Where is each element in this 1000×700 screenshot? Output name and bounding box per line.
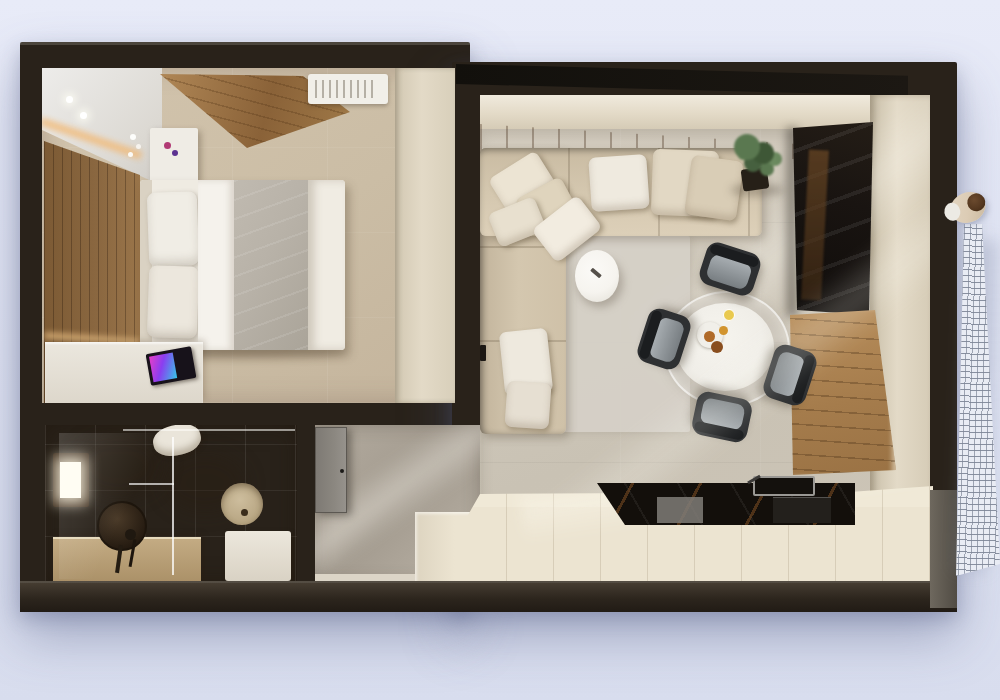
potted-plant — [720, 132, 788, 194]
drink-glass — [723, 309, 735, 321]
bedroom — [42, 68, 455, 403]
bathroom — [45, 425, 297, 583]
bed-pillow — [147, 265, 199, 339]
pastry — [719, 326, 728, 335]
glass-reflection — [59, 433, 179, 579]
orchid-flower — [130, 134, 136, 140]
ceiling-spotlight-icon — [80, 112, 87, 119]
wall-top-highlight — [20, 42, 470, 45]
wall-switch — [480, 345, 486, 361]
folded-sheet — [198, 180, 234, 350]
plant-leaves — [734, 134, 760, 160]
vent-grille-icon — [315, 80, 377, 98]
bathroom-unit — [225, 531, 291, 581]
kitchen — [413, 448, 933, 584]
dishwasher-front — [657, 497, 703, 523]
glass-top-edge — [123, 429, 295, 431]
ac-vent — [308, 74, 388, 104]
magazine-cover — [149, 353, 177, 383]
pastry — [704, 331, 715, 342]
orchid-flower — [136, 144, 141, 149]
sofa-cushion — [588, 154, 650, 212]
bed-pillow — [147, 191, 200, 267]
kitchen-sink — [753, 476, 815, 496]
round-basin — [221, 483, 263, 525]
ceiling-spotlight-icon — [66, 96, 73, 103]
duvet-edge — [308, 180, 345, 350]
grey-blanket — [234, 180, 308, 350]
wall-bottom-face — [20, 581, 957, 612]
wall-right-lower-face — [930, 490, 957, 608]
plant-pot — [741, 166, 770, 191]
black-stone-countertop — [597, 483, 855, 525]
floorplan-stage — [0, 0, 1000, 700]
nightstand-decor — [172, 150, 178, 156]
orchid-flower — [128, 152, 133, 157]
sofa-cushion — [504, 381, 551, 430]
blanket-creases — [234, 180, 308, 350]
basin-drain — [241, 509, 248, 516]
oven-front — [773, 497, 831, 523]
door-handle — [340, 469, 344, 473]
double-bed — [140, 180, 345, 350]
bedroom-wall-face — [395, 68, 455, 403]
person-on-balcony — [940, 174, 1000, 241]
pastry — [711, 341, 723, 353]
nightstand-decor — [164, 142, 171, 149]
